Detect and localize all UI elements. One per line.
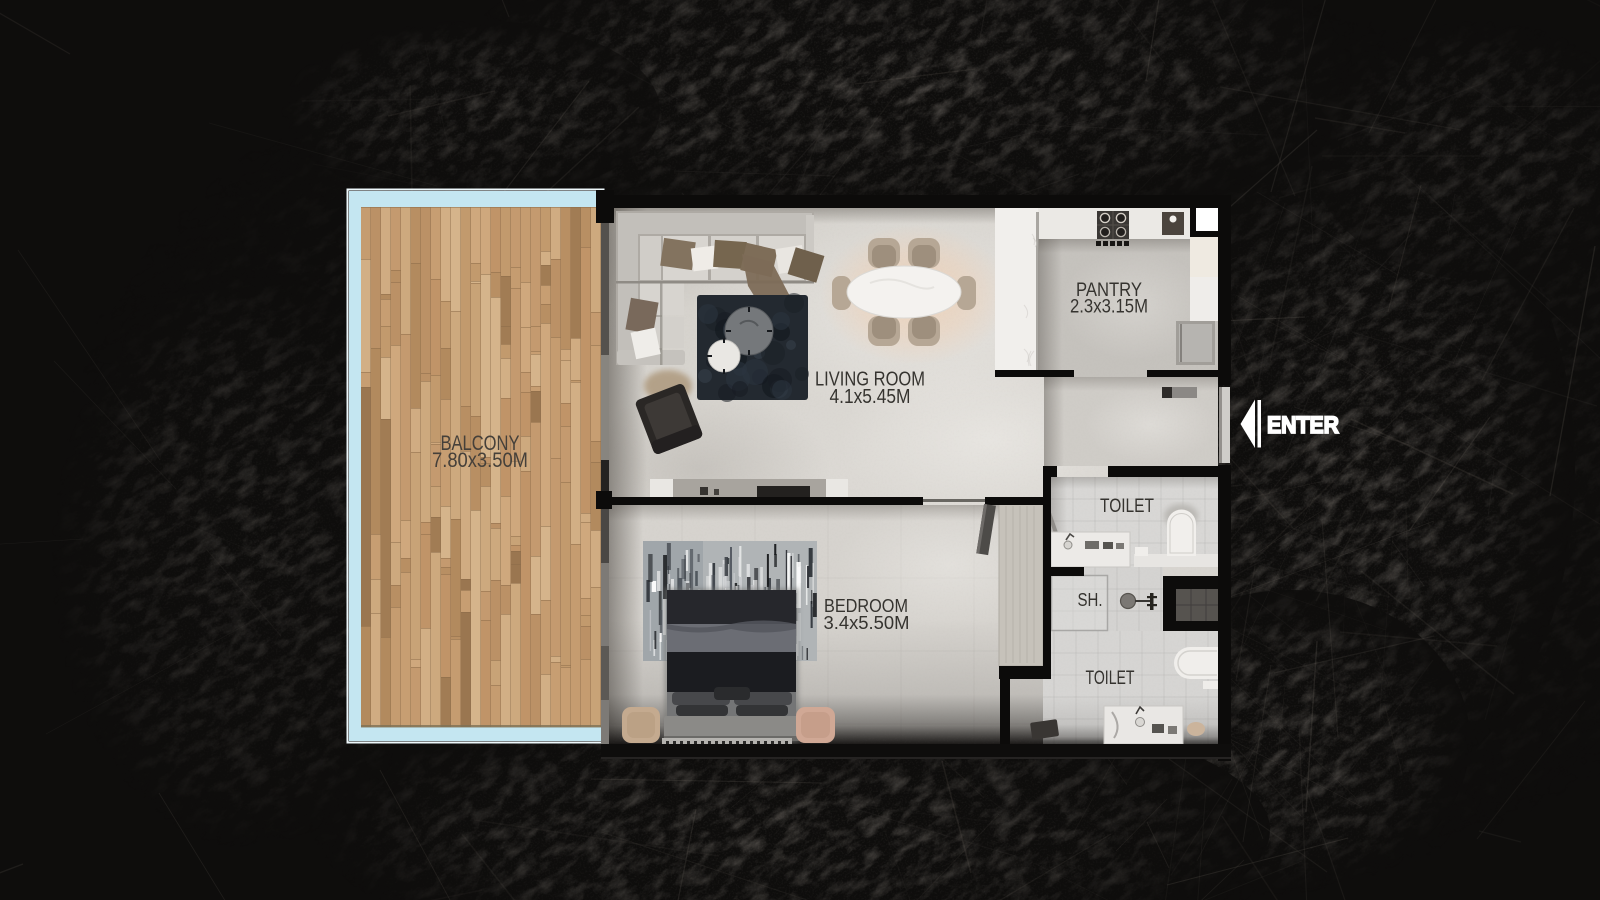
svg-text:2.3x3.15M: 2.3x3.15M [1070,297,1148,318]
svg-text:ENTER: ENTER [1267,412,1339,439]
svg-text:SH.: SH. [1078,590,1103,610]
svg-text:7.80x3.50M: 7.80x3.50M [432,449,528,472]
svg-text:3.4x5.50M: 3.4x5.50M [824,612,910,633]
svg-text:TOILET: TOILET [1086,668,1135,689]
svg-text:4.1x5.45M: 4.1x5.45M [830,386,911,408]
svg-text:TOILET: TOILET [1100,496,1154,517]
